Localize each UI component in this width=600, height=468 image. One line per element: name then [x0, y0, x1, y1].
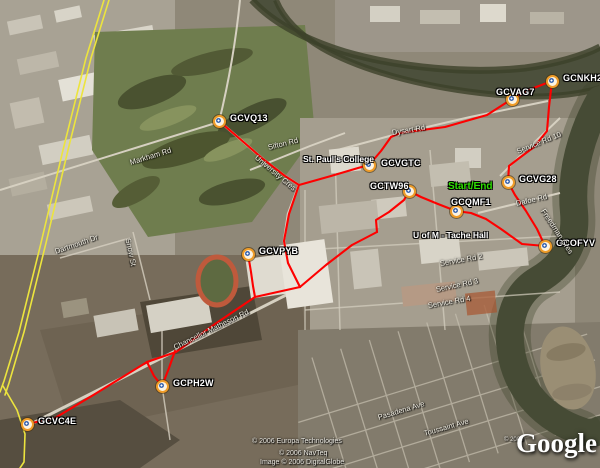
placemark-icon — [216, 118, 221, 123]
placemark-icon — [549, 78, 554, 83]
placemark-gcnkh2[interactable] — [546, 75, 559, 88]
placemark-gcvc4e[interactable] — [21, 418, 34, 431]
placemark-gcvpyb[interactable] — [242, 248, 255, 261]
placemark-icon — [453, 208, 458, 213]
street-label: Sifton Rd — [267, 136, 299, 152]
placemark-gcofyv[interactable] — [539, 240, 552, 253]
placemark-label-gcvag7: GCVAG7 — [496, 87, 535, 97]
placemark-gcvq13[interactable] — [213, 115, 226, 128]
street-label: Snow St — [124, 238, 139, 267]
street-label: University Cres — [253, 153, 298, 193]
street-label: Dysart Rd — [391, 123, 425, 137]
placemark-icon — [159, 383, 164, 388]
placemark-label-gcvg28: GCVG28 — [519, 174, 557, 184]
street-label: Service Rd 2 — [439, 252, 483, 268]
start-end-label: Start/End — [448, 181, 492, 192]
placemark-label-gctw96: GCTW96 — [370, 181, 409, 191]
attribution-text: © 2006 NavTeq — [279, 450, 327, 457]
placemark-gcvg28[interactable] — [502, 176, 515, 189]
street-label: Service Rd 4 — [427, 294, 471, 310]
street-label: Dartmouth Dr — [54, 233, 99, 256]
placemark-label-gcnkh2: GCNKH2 — [563, 73, 600, 83]
street-label: Markham Rd — [129, 146, 173, 167]
placemark-label-gcph2w: GCPH2W — [173, 378, 214, 388]
street-label: Pasadena Ave — [377, 399, 426, 422]
placemark-icon — [24, 421, 29, 426]
placemark-label-gcvc4e: GCVC4E — [38, 416, 76, 426]
placemark-label-gcqmf1: GCQMF1 — [451, 197, 491, 207]
street-label: Dafoe Rd — [515, 192, 548, 208]
satellite-map-canvas[interactable]: GCVQ13GCNKH2GCVAG7GCVGTCGCVG28GCTW96GCQM… — [0, 0, 600, 468]
placemark-layer: GCVQ13GCNKH2GCVAG7GCVGTCGCVG28GCTW96GCQM… — [0, 0, 600, 468]
attribution-text: Image © 2006 DigitalGlobe — [260, 459, 344, 466]
street-label: Service Rd 3 — [435, 276, 479, 294]
street-label: Toussaint Ave — [423, 416, 470, 437]
placemark-icon — [505, 179, 510, 184]
placemark-label-gcvpyb: GCVPYB — [259, 246, 298, 256]
placemark-label-gcvgtc: GCVGTC — [381, 158, 421, 168]
street-label: Chancellor Matheson Rd — [172, 307, 250, 351]
place-label: U of M - Tache Hall — [413, 230, 488, 240]
placemark-label-gcvq13: GCVQ13 — [230, 113, 268, 123]
place-label: St. Paul's College — [303, 154, 374, 164]
google-logo: Google — [516, 428, 597, 459]
attribution-text: © 2006 Europa Technologies — [252, 438, 342, 445]
placemark-icon — [245, 251, 250, 256]
street-label: Service Rd 10 — [515, 130, 562, 156]
placemark-icon — [542, 243, 547, 248]
placemark-gcph2w[interactable] — [156, 380, 169, 393]
